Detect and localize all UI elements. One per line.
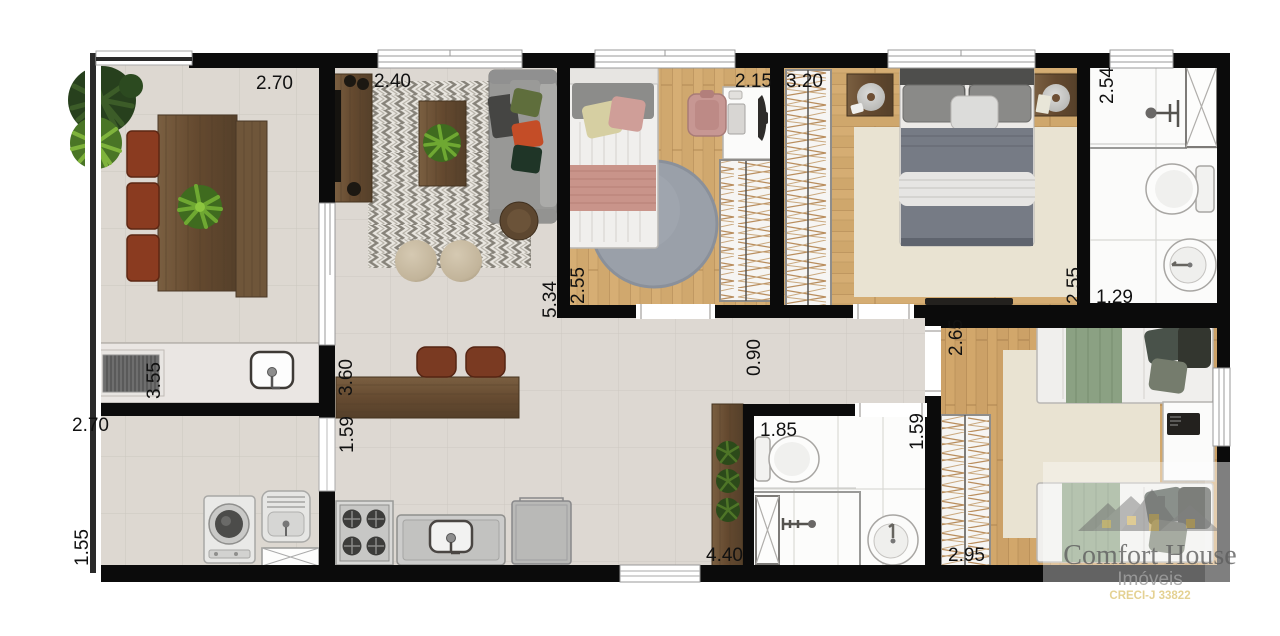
svg-text:2.54: 2.54 bbox=[1097, 67, 1118, 104]
svg-text:5.34: 5.34 bbox=[540, 281, 561, 318]
svg-text:1.29: 1.29 bbox=[1096, 287, 1133, 308]
svg-text:3.20: 3.20 bbox=[786, 71, 823, 92]
svg-text:CRECI-J 33822: CRECI-J 33822 bbox=[1109, 590, 1190, 602]
svg-text:0.90: 0.90 bbox=[744, 339, 765, 376]
svg-text:1.59: 1.59 bbox=[337, 416, 358, 453]
svg-text:4.40: 4.40 bbox=[706, 545, 743, 566]
svg-text:1.85: 1.85 bbox=[760, 420, 797, 441]
svg-text:1.59: 1.59 bbox=[907, 413, 928, 450]
svg-text:Imóveis: Imóveis bbox=[1117, 569, 1182, 590]
svg-text:2.40: 2.40 bbox=[374, 71, 411, 92]
svg-text:1.55: 1.55 bbox=[72, 529, 93, 566]
svg-text:2.70: 2.70 bbox=[72, 415, 109, 436]
svg-text:3.55: 3.55 bbox=[144, 362, 165, 399]
svg-text:2.55: 2.55 bbox=[1064, 267, 1085, 304]
svg-text:3.60: 3.60 bbox=[336, 359, 357, 396]
svg-text:2.55: 2.55 bbox=[568, 267, 589, 304]
svg-text:2.15: 2.15 bbox=[735, 71, 772, 92]
svg-text:Comfort House: Comfort House bbox=[1063, 540, 1236, 571]
svg-text:2.70: 2.70 bbox=[256, 73, 293, 94]
svg-text:2.95: 2.95 bbox=[948, 545, 985, 566]
svg-text:2.65: 2.65 bbox=[946, 319, 967, 356]
